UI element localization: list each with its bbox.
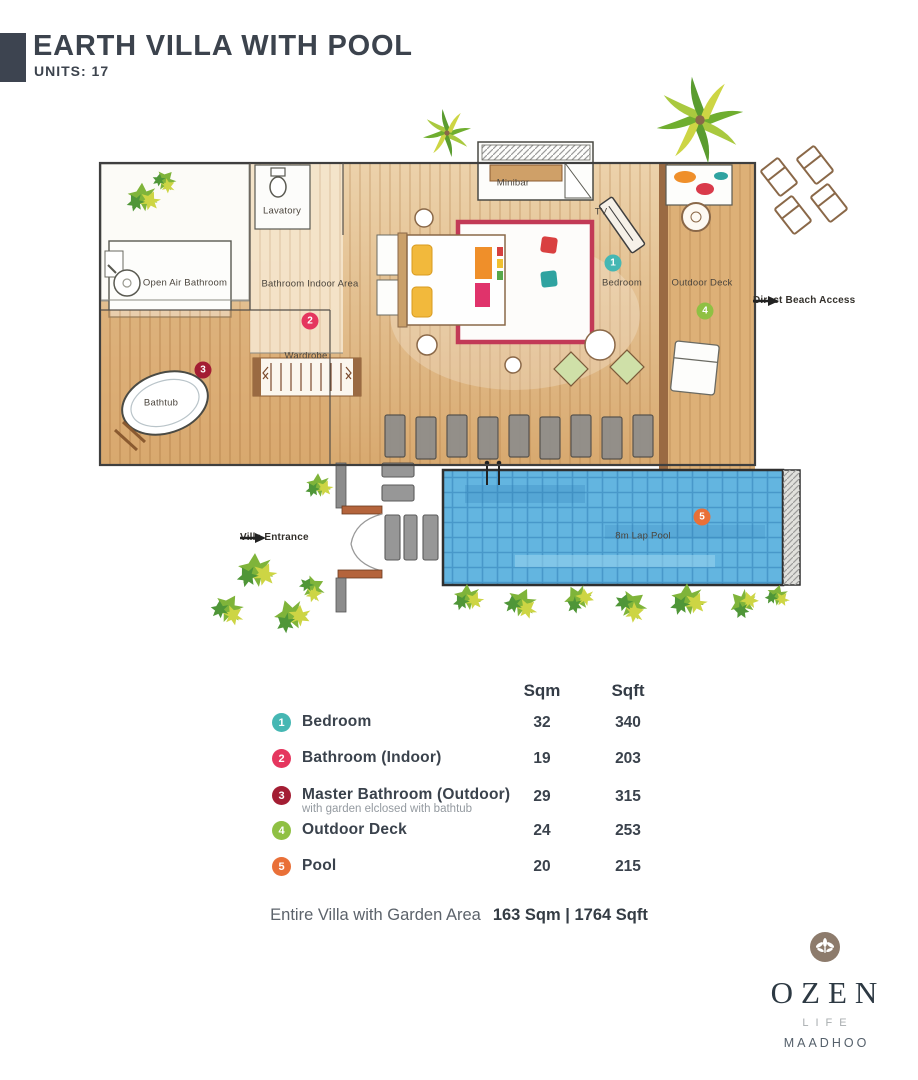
label-outdoor-deck: Outdoor Deck	[671, 278, 732, 289]
row-label: Pool	[302, 857, 336, 875]
legend-marker-4: 4	[272, 821, 291, 840]
row-label: Bedroom	[302, 713, 371, 731]
right-arrow-icon	[753, 295, 779, 307]
label-bathroom-indoor-area: Bathroom Indoor Area	[262, 279, 359, 290]
total-label: Entire Villa with Garden Area	[270, 906, 481, 924]
label-lap-pool: 8m Lap Pool	[615, 531, 671, 542]
column-header-sqft: Sqft	[593, 681, 663, 701]
label-open-air-bathroom: Open Air Bathroom	[143, 278, 227, 289]
row-label: Master Bathroom (Outdoor)	[302, 786, 510, 804]
logo-location: MAADHOO	[740, 1036, 913, 1050]
brand-logo: OZEN LIFE MAADHOO	[737, 932, 913, 1050]
logo-emblem	[810, 932, 840, 962]
legend-marker-2: 2	[272, 749, 291, 768]
palm-leaf-icon	[810, 932, 840, 962]
label-lavatory: Lavatory	[263, 206, 301, 217]
row-sqft: 315	[598, 788, 658, 806]
label-bedroom: Bedroom	[602, 278, 642, 289]
villa-total-area: Entire Villa with Garden Area163 Sqm | 1…	[0, 906, 918, 925]
row-sqft: 253	[598, 822, 658, 840]
label-wardrobe: Wardrobe	[285, 351, 328, 362]
label-bathtub: Bathtub	[144, 398, 178, 409]
plan-marker-4: 4	[697, 303, 714, 320]
plan-marker-5: 5	[694, 509, 711, 526]
total-value: 163 Sqm | 1764 Sqft	[493, 906, 648, 924]
row-sqft: 215	[598, 858, 658, 876]
logo-line: LIFE	[743, 1017, 913, 1029]
legend-marker-5: 5	[272, 857, 291, 876]
legend-marker-3: 3	[272, 786, 291, 805]
legend-marker-1: 1	[272, 713, 291, 732]
plan-marker-1: 1	[605, 255, 622, 272]
villa-entrance-callout: Villa Entrance	[240, 532, 309, 543]
right-arrow-icon	[240, 532, 266, 544]
row-label: Bathroom (Indoor)	[302, 749, 441, 767]
row-sqm: 19	[512, 750, 572, 768]
row-sqm: 24	[512, 822, 572, 840]
row-note: with garden elclosed with bathtub	[302, 803, 472, 815]
row-sqm: 20	[512, 858, 572, 876]
label-minibar: Minibar	[497, 178, 530, 189]
label-tv: TV	[595, 207, 608, 218]
row-sqm: 29	[512, 788, 572, 806]
logo-brand-name: OZEN	[743, 975, 913, 1011]
title-accent-block	[0, 33, 26, 82]
page-title: EARTH VILLA WITH POOL	[33, 30, 413, 63]
plan-marker-2: 2	[302, 313, 319, 330]
row-sqft: 203	[598, 750, 658, 768]
floor-plan: Lavatory Open Air Bathroom Bathroom Indo…	[85, 65, 918, 670]
plan-marker-3: 3	[195, 362, 212, 379]
beach-access-callout: Direct Beach Access	[753, 295, 855, 306]
row-label: Outdoor Deck	[302, 821, 407, 839]
column-header-sqm: Sqm	[507, 681, 577, 701]
row-sqft: 340	[598, 714, 658, 732]
brochure-page: EARTH VILLA WITH POOL UNITS: 17	[0, 0, 918, 1080]
row-sqm: 32	[512, 714, 572, 732]
